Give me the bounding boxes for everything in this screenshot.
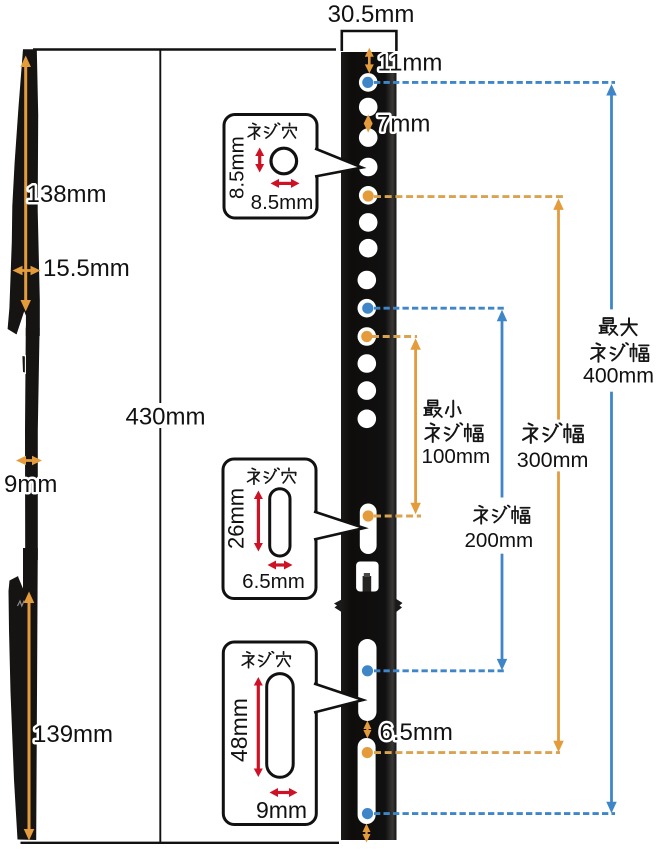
svg-text:7mm: 7mm — [377, 111, 430, 138]
svg-text:400mm: 400mm — [583, 363, 654, 387]
svg-text:6.5mm: 6.5mm — [242, 570, 305, 593]
svg-text:430mm: 430mm — [125, 404, 205, 431]
svg-text:26mm: 26mm — [224, 488, 249, 549]
svg-text:9mm: 9mm — [4, 471, 57, 498]
svg-text:200mm: 200mm — [464, 529, 533, 552]
svg-text:30.5mm: 30.5mm — [328, 1, 415, 28]
svg-text:9mm: 9mm — [256, 797, 307, 823]
svg-text:48mm: 48mm — [226, 698, 252, 762]
svg-text:300mm: 300mm — [517, 448, 589, 472]
svg-text:139mm: 139mm — [33, 721, 113, 748]
svg-text:6.5mm: 6.5mm — [380, 719, 453, 746]
svg-text:100mm: 100mm — [422, 445, 491, 468]
svg-text:15.5mm: 15.5mm — [43, 255, 130, 282]
svg-text:8.5mm: 8.5mm — [251, 191, 314, 214]
svg-text:11mm: 11mm — [378, 50, 443, 77]
svg-text:8.5mm: 8.5mm — [226, 136, 249, 199]
svg-text:138mm: 138mm — [27, 181, 107, 208]
